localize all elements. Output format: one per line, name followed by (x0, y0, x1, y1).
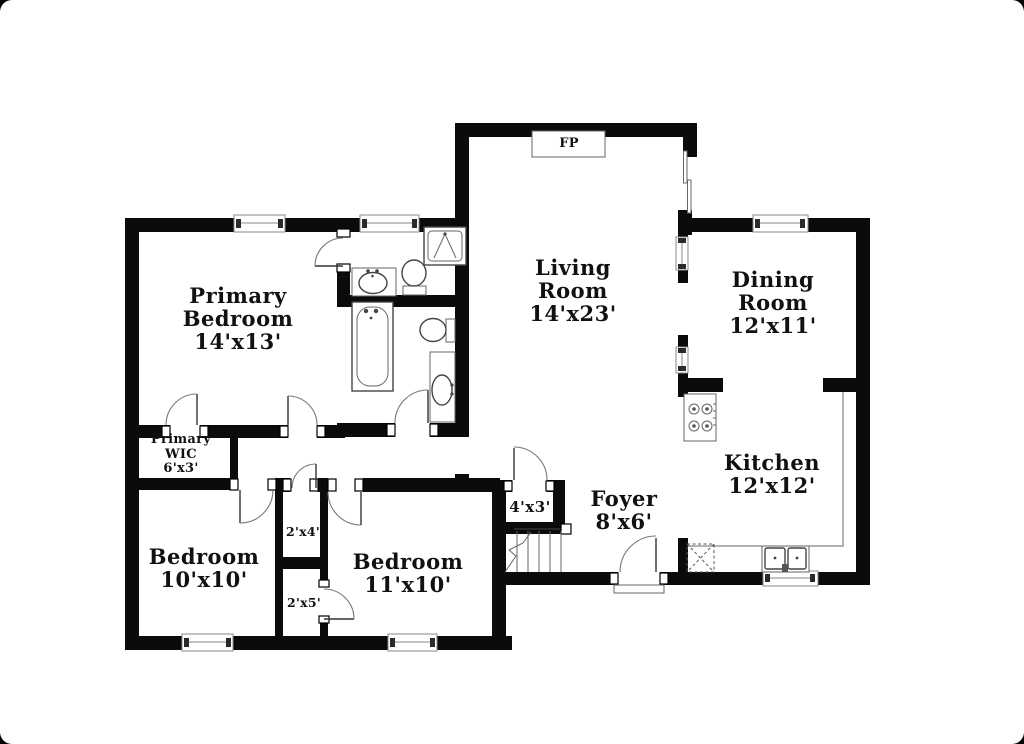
room-label-dining: Dining Room 12'x11' (729, 268, 816, 337)
door-arc (328, 492, 361, 525)
window (388, 634, 437, 651)
sink-icon (352, 268, 396, 296)
room-name-line: Bedroom (149, 545, 260, 568)
closet-label-2x5: 2'x5' (287, 596, 321, 609)
room-dims: 2'x4' (286, 525, 320, 538)
interior-window (676, 237, 688, 270)
closet-label-4x3: 4'x3' (509, 499, 551, 515)
interior-window (676, 347, 688, 373)
room-name-line: Primary (183, 284, 294, 307)
room-dims: 10'x10' (149, 568, 260, 591)
room-name-line: Foyer (591, 487, 658, 510)
door-arc (324, 589, 354, 619)
door-arc (288, 396, 317, 425)
room-label-kitchen: Kitchen 12'x12' (724, 451, 820, 497)
floor-plan-svg (0, 0, 1024, 744)
room-name-line: Bedroom (353, 550, 464, 573)
stove-icon (684, 394, 716, 441)
kitchen-sink-icon (762, 546, 809, 572)
door-arc (395, 390, 428, 423)
dishwasher-icon (687, 544, 714, 572)
shower-icon (424, 227, 466, 265)
door-arc (166, 394, 197, 425)
room-dims: 11'x10' (353, 573, 464, 596)
room-dims: 6'x3' (151, 462, 211, 477)
toilet-icon (402, 260, 426, 295)
bathtub-icon (352, 302, 393, 391)
window (182, 634, 233, 651)
room-label-living: Living Room 14'x23' (529, 256, 616, 325)
room-dims: 2'x5' (287, 596, 321, 609)
room-name-line: Dining (729, 268, 816, 291)
door-arc (514, 447, 547, 480)
room-dims: 12'x12' (724, 474, 820, 497)
room-name-line: Primary (151, 433, 211, 448)
floor-plan: Living Room 14'x23' Dining Room 12'x11' … (0, 0, 1024, 744)
room-name-line: Room (729, 291, 816, 314)
room-dims: 8'x6' (591, 510, 658, 533)
sliding-door-icon (684, 151, 692, 213)
room-name-line: Bedroom (183, 307, 294, 330)
room-dims: 14'x23' (529, 302, 616, 325)
fireplace-label: FP (559, 137, 579, 152)
room-name-line: Room (529, 279, 616, 302)
window (360, 215, 419, 232)
room-label-foyer: Foyer 8'x6' (591, 487, 658, 533)
room-name-line: WIC (151, 448, 211, 463)
room-dims: 14'x13' (183, 330, 294, 353)
window (234, 215, 285, 232)
room-label-primary-bedroom: Primary Bedroom 14'x13' (183, 284, 294, 353)
room-name-line: Kitchen (724, 451, 820, 474)
sink-icon (430, 352, 455, 422)
fireplace-text: FP (559, 137, 579, 152)
room-label-primary-wic: Primary WIC 6'x3' (151, 433, 211, 477)
room-label-bedroom-mid: Bedroom 11'x10' (353, 550, 464, 596)
door-arc (240, 490, 273, 523)
closet-label-2x4: 2'x4' (286, 525, 320, 538)
room-name-line: Living (529, 256, 616, 279)
hall-bath-fixtures (352, 302, 455, 422)
window (763, 571, 818, 586)
primary-bath-fixtures (352, 227, 466, 296)
room-dims: 4'x3' (509, 499, 551, 515)
toilet-icon (420, 319, 455, 343)
room-dims: 12'x11' (729, 314, 816, 337)
room-label-bedroom-left: Bedroom 10'x10' (149, 545, 260, 591)
window (753, 215, 808, 232)
